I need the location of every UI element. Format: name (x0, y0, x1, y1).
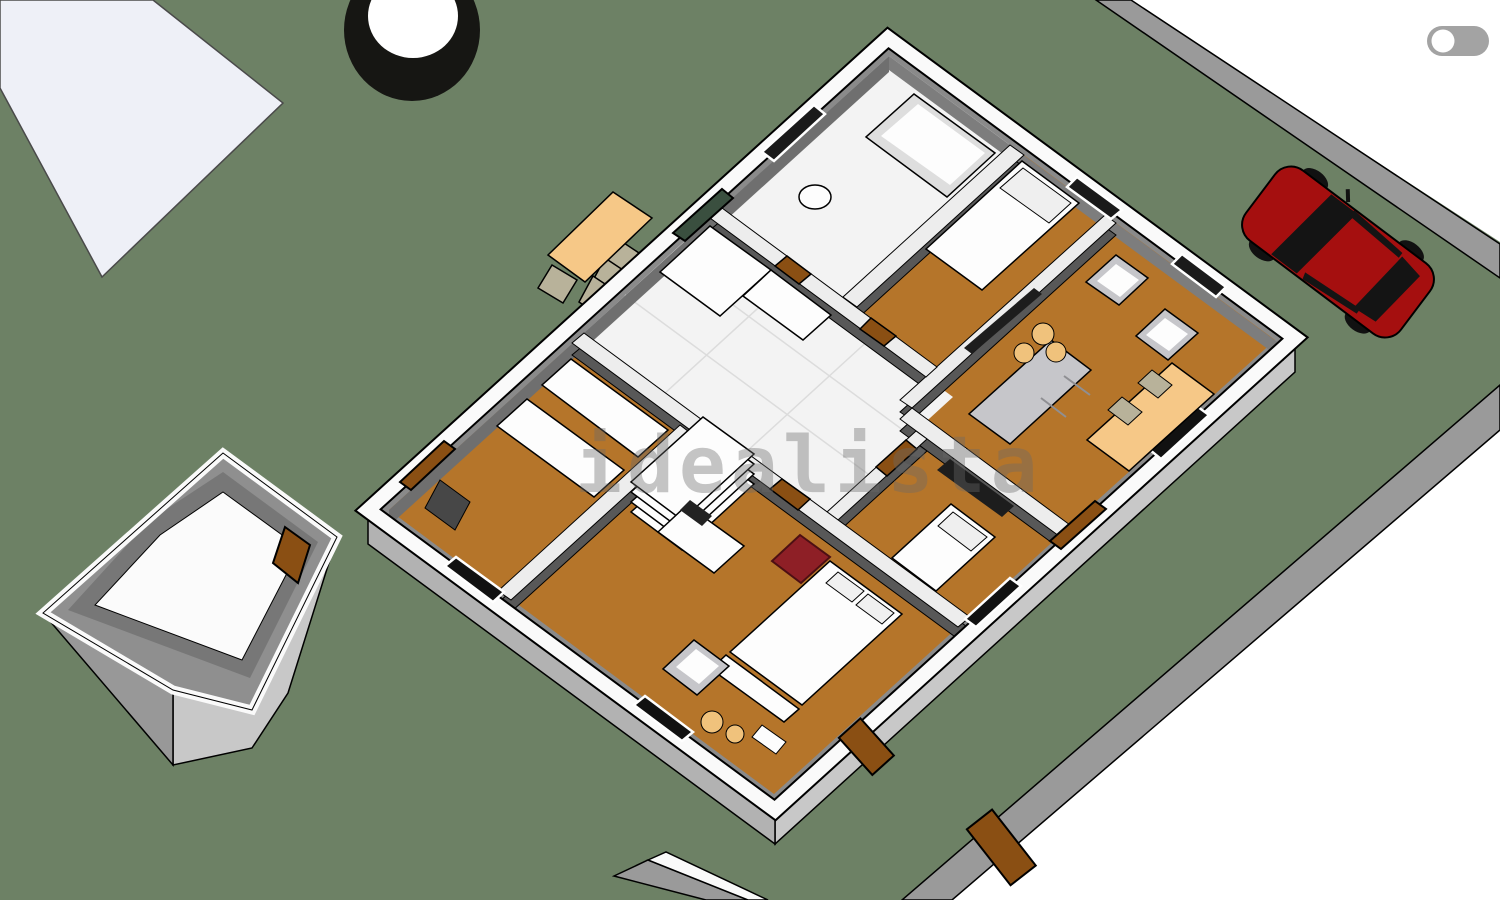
pouf (1014, 343, 1034, 363)
floorplan-render: idealista (0, 0, 1500, 900)
watermark: idealista (575, 421, 1043, 511)
toilet (799, 185, 831, 209)
toggle-knob[interactable] (1432, 30, 1455, 53)
view-toggle[interactable] (1427, 26, 1489, 56)
pouf (701, 711, 723, 733)
scene-canvas: idealista (0, 0, 1500, 900)
pouf (726, 725, 744, 743)
pouf (1046, 342, 1066, 362)
pouf (1032, 323, 1054, 345)
